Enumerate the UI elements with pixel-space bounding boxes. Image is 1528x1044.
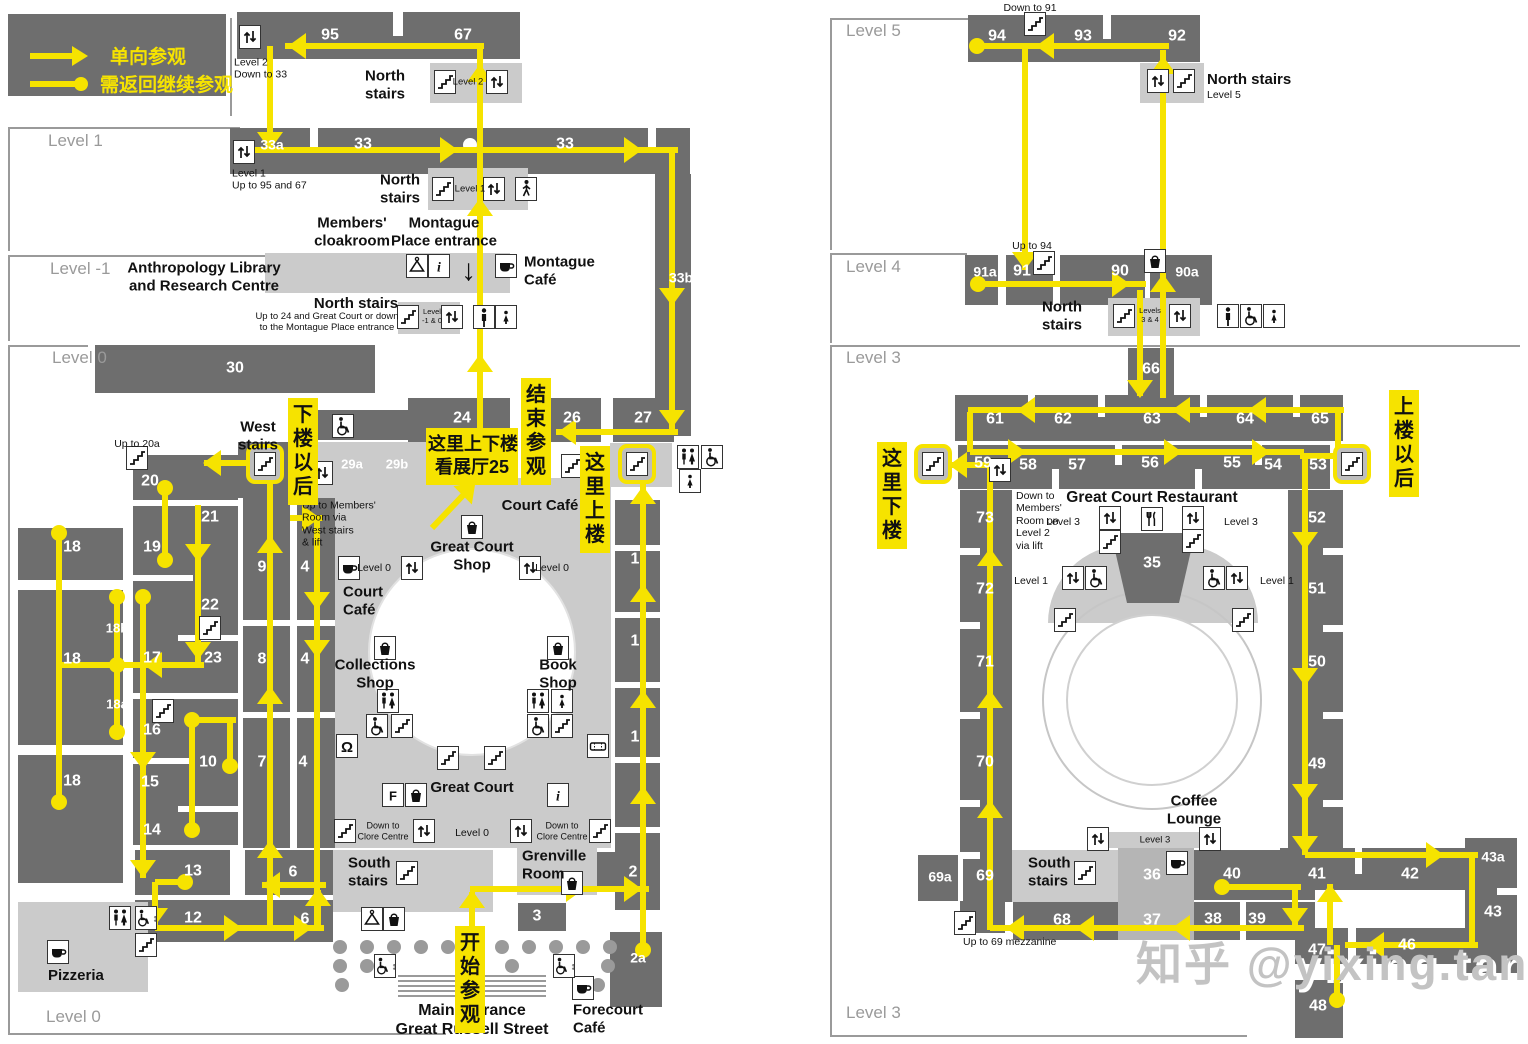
- route-arrow: [262, 872, 280, 898]
- map-text: Level 0: [46, 1007, 101, 1027]
- svg-text:i: i: [437, 261, 441, 276]
- room-number: 19: [143, 539, 161, 558]
- room-number: 39: [1248, 911, 1266, 930]
- stairs-icon: [589, 819, 611, 843]
- lift-icon: [989, 458, 1011, 482]
- route-arrow: [224, 915, 242, 941]
- room-number: 2a: [630, 950, 646, 967]
- room-number: 7: [258, 754, 267, 773]
- legend-one-way-row: 单向参观: [30, 42, 186, 69]
- route-arrow: [257, 535, 283, 553]
- return-line-icon: [30, 81, 76, 87]
- room-number: 30: [226, 360, 244, 379]
- lift-icon: [1099, 506, 1121, 530]
- route-arrow: [1426, 842, 1444, 868]
- map-gap: [133, 500, 238, 506]
- stairs-icon: [1024, 12, 1046, 36]
- map-text: Great Court: [430, 779, 513, 797]
- room-number: 53: [1309, 457, 1327, 476]
- map-gap: [1323, 712, 1343, 719]
- map-text: Level 3: [1140, 834, 1171, 845]
- room-number: 49: [1308, 756, 1326, 775]
- map-gap: [615, 757, 660, 763]
- map-gap: [1323, 548, 1343, 555]
- colonnade-dot: [505, 959, 519, 973]
- lift-icon: [1182, 506, 1204, 530]
- level-frame-line: [830, 1035, 1247, 1037]
- stairs-icon: [437, 746, 459, 770]
- route-arrow: [1292, 784, 1318, 802]
- level-frame-line: [8, 127, 10, 251]
- room-number: 95: [321, 27, 339, 46]
- map-gap: [1195, 469, 1202, 489]
- svg-text:↕: ↕: [571, 962, 575, 973]
- room-number: 33b: [669, 270, 693, 287]
- map-text: Great Court Shop: [430, 538, 513, 573]
- room-number: 14: [143, 822, 161, 841]
- map-gap: [1098, 395, 1105, 417]
- headphones-icon: Ω: [336, 734, 358, 758]
- map-gap: [18, 745, 123, 755]
- route-arrow: [1150, 274, 1176, 292]
- level-frame-line: [8, 345, 88, 347]
- basket-icon: [461, 515, 483, 539]
- level-frame-line: [830, 253, 832, 343]
- map-text: South stairs: [348, 854, 391, 889]
- map-text: Up to 69 mezzanine: [963, 936, 1056, 948]
- map-block: [518, 903, 566, 931]
- room-number: 55: [1223, 455, 1241, 474]
- map-gap: [960, 622, 980, 629]
- route-return-dot: [51, 794, 67, 810]
- map-gap: [1323, 800, 1343, 807]
- route-arrow: [288, 33, 306, 59]
- colonnade-dot: [576, 940, 590, 954]
- room-number: 1: [631, 633, 640, 652]
- level-frame-line: [8, 1033, 446, 1035]
- route-segment: [162, 488, 168, 560]
- wheelchair-icon: [332, 414, 354, 438]
- map-text: Montague Place entrance: [391, 214, 497, 249]
- level-frame-line: [8, 127, 240, 129]
- route-segment: [1305, 852, 1478, 858]
- stairs-icon: [954, 911, 976, 935]
- stairs-icon: [432, 177, 454, 201]
- svg-text:Ω: Ω: [341, 739, 353, 756]
- room-number: 69: [976, 868, 994, 887]
- room-number: 40: [1223, 866, 1241, 885]
- route-arrow: [304, 592, 330, 610]
- route-segment: [1022, 48, 1028, 270]
- room-number: 91a: [973, 264, 996, 281]
- map-gap: [958, 855, 963, 901]
- stairs-icon: [1173, 69, 1195, 93]
- room-number: 27: [634, 410, 652, 429]
- route-arrow: [1076, 915, 1094, 941]
- map-gap: [998, 255, 1006, 305]
- room-number: 4: [301, 559, 310, 578]
- route-arrow: [257, 840, 283, 858]
- room-number: 51: [1308, 581, 1326, 600]
- route-segment: [314, 518, 320, 930]
- map-text: Forecourt Café: [573, 1001, 643, 1036]
- route-arrow: [203, 450, 221, 476]
- entrance-down-icon: ↓: [461, 254, 476, 288]
- legend-return-row: 需返回继续参观: [30, 70, 233, 97]
- room-number: 64: [1236, 411, 1254, 430]
- map-text: Level 5: [1207, 89, 1241, 101]
- map-gap: [393, 12, 403, 36]
- map-text: Pizzeria: [48, 967, 104, 985]
- map-gap: [1115, 445, 1122, 465]
- route-segment: [640, 480, 646, 886]
- colonnade-dot: [549, 940, 563, 954]
- map-gap: [290, 498, 297, 848]
- map-text: Level 1: [48, 131, 103, 151]
- map-gap: [1293, 395, 1300, 417]
- room-number: 94: [988, 28, 1006, 47]
- route-segment: [1160, 50, 1166, 398]
- room-number: 52: [1308, 510, 1326, 529]
- colonnade-dot: [335, 978, 349, 992]
- stairs-icon: [626, 452, 648, 476]
- map-text: West stairs: [238, 418, 278, 453]
- stairs-icon: [135, 933, 157, 957]
- info-icon: i: [428, 254, 450, 278]
- map-text: Up to 24 and Great Court or down to the …: [255, 311, 398, 333]
- map-gap: [615, 682, 660, 688]
- room-number: 58: [1019, 457, 1037, 476]
- wc-icon: [109, 906, 131, 930]
- stairs-icon: [1232, 608, 1254, 632]
- stairs-icon: [199, 616, 221, 640]
- wheelchair-icon: [527, 714, 549, 738]
- map-text: Level 3: [1224, 516, 1258, 528]
- room-number: 18a: [106, 696, 128, 711]
- map-gap: [178, 806, 238, 812]
- route-arrow: [305, 888, 331, 906]
- map-text: South stairs: [1028, 854, 1071, 889]
- route-arrow: [130, 860, 156, 878]
- room-number: 70: [976, 754, 994, 773]
- lift-icon: [1199, 827, 1221, 851]
- colonnade-dot: [522, 940, 536, 954]
- room-number: 68: [1053, 912, 1071, 931]
- stairs-icon: [1113, 304, 1135, 328]
- route-return-dot: [109, 724, 125, 740]
- map-text: Book Shop: [539, 656, 577, 691]
- wheelchair-icon: [701, 445, 723, 469]
- room-number: 67: [454, 27, 472, 46]
- room-number: 8: [258, 651, 267, 670]
- map-text: Up to 94: [1012, 240, 1052, 252]
- map-text: Level 0: [357, 562, 391, 574]
- map-gap: [615, 612, 660, 618]
- level-frame-line: [830, 345, 1520, 347]
- room-number: 48: [1309, 998, 1327, 1017]
- one-way-arrowhead-icon: [72, 46, 88, 66]
- room-number: 33: [354, 136, 372, 155]
- return-dot-icon: [74, 77, 88, 91]
- room-number: 22: [201, 597, 219, 616]
- lift-icon: [239, 25, 261, 49]
- room-number: 10: [199, 754, 217, 773]
- wheelchair-icon: [1085, 566, 1107, 590]
- route-arrow: [1292, 836, 1318, 854]
- map-text: North stairs: [380, 171, 420, 206]
- wclift-icon: ↕: [135, 906, 157, 930]
- room-number: 2: [629, 864, 638, 883]
- stairs-icon: [1054, 608, 1076, 632]
- lift-icon: [413, 819, 435, 843]
- room-number: 42: [1401, 866, 1419, 885]
- map-text: Level 3: [846, 1003, 901, 1023]
- cn-annotation: 这里上楼: [580, 446, 610, 553]
- route-arrow: [1317, 884, 1343, 902]
- room-number: 1: [631, 729, 640, 748]
- route-segment: [189, 722, 195, 830]
- room-number: 9: [258, 559, 267, 578]
- stairs-icon: [1099, 530, 1121, 554]
- wclift-icon: ↕: [553, 954, 575, 978]
- room-number: 16: [143, 722, 161, 741]
- cn-annotation: 下楼以后: [288, 398, 318, 505]
- route-arrow: [1292, 532, 1318, 550]
- room-number: 13: [184, 863, 202, 882]
- map-text: Collections Shop: [335, 656, 416, 691]
- ticket-icon: [587, 734, 609, 758]
- room-number: 29b: [386, 456, 408, 471]
- route-segment: [56, 533, 62, 802]
- museum-floor-plan: 单向参观 需返回继续参观 知乎 @yixing.tan i↓ΩFi↕↕↕Leve…: [0, 0, 1528, 1044]
- room-number: 62: [1054, 411, 1072, 430]
- room-number: 33: [556, 136, 574, 155]
- map-gap: [615, 827, 660, 833]
- level-frame-line: [830, 18, 970, 20]
- map-gap: [1103, 15, 1111, 39]
- room-number: 65: [1311, 411, 1329, 430]
- lift-icon: [486, 70, 508, 94]
- map-text: Level 2 Down to 33: [234, 57, 287, 82]
- watermark: 知乎 @yixing.tan: [1136, 928, 1528, 994]
- level-frame-line: [230, 18, 232, 116]
- room-number: 38: [1204, 911, 1222, 930]
- room-number: 18b: [106, 620, 128, 635]
- colonnade-dot: [360, 940, 374, 954]
- F-icon: F: [382, 783, 404, 807]
- room-number: 90a: [1175, 264, 1198, 281]
- route-arrow: [185, 544, 211, 562]
- room-number: 23: [204, 650, 222, 669]
- map-gap: [1200, 395, 1207, 417]
- map-text: Level 0: [535, 562, 569, 574]
- level-frame-line: [830, 345, 832, 1035]
- route-arrow: [659, 410, 685, 428]
- stairs-icon: [922, 452, 944, 476]
- route-arrow: [630, 690, 656, 708]
- map-text: North stairs: [1042, 298, 1082, 333]
- stairs-icon: [551, 714, 573, 738]
- map-block: [610, 932, 662, 1007]
- wc-icon: [677, 445, 699, 469]
- map-text: Level 3: [846, 348, 901, 368]
- info-icon: i: [547, 783, 569, 807]
- room-number: 17: [143, 650, 161, 669]
- route-arrow: [1282, 908, 1308, 926]
- wheelchair-icon: [1203, 566, 1225, 590]
- basket-icon: [383, 907, 405, 931]
- map-text: Level 1: [1260, 575, 1294, 587]
- stairs-icon: [334, 819, 356, 843]
- colonnade-dot: [360, 959, 374, 973]
- route-arrow: [440, 137, 458, 163]
- level-frame-line: [830, 18, 832, 250]
- route-return-dot: [109, 589, 125, 605]
- map-gap: [960, 712, 980, 719]
- room-number: 24: [453, 410, 471, 429]
- room-number: 72: [976, 581, 994, 600]
- room-number: 36: [1143, 867, 1161, 886]
- route-segment: [967, 412, 973, 452]
- map-text: Level 5: [846, 21, 901, 41]
- map-text: Level 2: [453, 76, 484, 87]
- reading-room-circle: [1066, 614, 1238, 786]
- room-number: 15: [141, 774, 159, 793]
- map-text: Level 1: [455, 183, 486, 194]
- room-number: 35: [1143, 555, 1161, 574]
- map-text: Down to Clore Centre: [536, 820, 587, 841]
- cn-annotation: 这里下楼: [877, 442, 907, 549]
- room-number: 1: [631, 551, 640, 570]
- baby-icon: [495, 305, 517, 329]
- route-return-dot: [969, 38, 985, 54]
- level-frame-line: [8, 255, 280, 257]
- map-text: Down to 91: [1003, 2, 1056, 14]
- svg-text:↕: ↕: [392, 962, 396, 973]
- hanger-icon: [361, 907, 383, 931]
- stairs-icon: [396, 861, 418, 885]
- route-arrow: [977, 548, 1003, 566]
- lift-icon: [483, 177, 505, 201]
- room-number: 63: [1143, 411, 1161, 430]
- wheelchair-icon: [1240, 304, 1262, 328]
- route-arrow: [659, 288, 685, 306]
- level-frame-line: [8, 255, 10, 341]
- map-text: Levels 3 & 4: [1139, 307, 1161, 325]
- route-return-dot: [157, 480, 173, 496]
- stairs-icon: [484, 746, 506, 770]
- level-frame-line: [8, 345, 10, 1035]
- cn-annotation: 上楼以后: [1389, 390, 1419, 497]
- map-text: Great Court Restaurant: [1066, 489, 1237, 507]
- room-number: 93: [1074, 28, 1092, 47]
- route-segment: [1222, 884, 1301, 890]
- stairs-icon: [1341, 452, 1363, 476]
- map-text: North stairs: [1207, 71, 1291, 89]
- map-gap: [1323, 625, 1343, 632]
- colonnade-dot: [603, 940, 617, 954]
- route-segment: [470, 886, 649, 892]
- map-text: Court Café: [343, 583, 383, 618]
- map-gap: [608, 922, 662, 930]
- room-number: 54: [1264, 457, 1282, 476]
- baby-icon: [551, 689, 573, 713]
- room-number: 61: [986, 411, 1004, 430]
- room-number: 33a: [260, 137, 283, 154]
- map-text: Level 1: [1014, 575, 1048, 587]
- wclift-icon: ↕: [374, 954, 396, 978]
- lift-icon: [510, 819, 532, 843]
- hanger-icon: [406, 254, 428, 278]
- room-number: 43a: [1481, 849, 1504, 866]
- lift-icon: [1087, 827, 1109, 851]
- forkknife-icon: [1141, 507, 1163, 531]
- route-arrow: [1164, 439, 1182, 465]
- baby-icon: [679, 469, 701, 493]
- stairs-icon: [152, 699, 174, 723]
- map-text: North stairs: [365, 67, 405, 102]
- map-text: Montague Café: [524, 253, 595, 288]
- basket-icon: [1144, 249, 1166, 273]
- cn-annotation: 这里上下楼 看展厅25: [426, 428, 518, 485]
- map-gap: [133, 693, 238, 699]
- route-legend: 单向参观 需返回继续参观: [8, 14, 226, 96]
- stairs-icon: [1033, 251, 1055, 275]
- cafe-icon: [495, 254, 517, 278]
- map-text: Down to Clore Centre: [357, 820, 408, 841]
- map-text: Members' cloakroom: [314, 214, 390, 249]
- map-text: Level 0: [455, 827, 489, 839]
- route-return-dot: [184, 822, 200, 838]
- stairs-icon: [1182, 529, 1204, 553]
- map-text: Up to 20a: [114, 438, 160, 450]
- room-number: 4: [301, 651, 310, 670]
- cafe-icon: [572, 976, 594, 1000]
- map-gap: [133, 575, 193, 581]
- walk-icon: [515, 177, 537, 201]
- stairs-icon: [391, 714, 413, 738]
- one-way-arrow-icon: [30, 53, 72, 59]
- room-number: 6: [301, 911, 310, 930]
- room-number: 73: [976, 510, 994, 529]
- route-arrow: [977, 800, 1003, 818]
- man-icon: [1217, 304, 1239, 328]
- room-number: 69a: [928, 869, 951, 886]
- room-number: 90: [1111, 263, 1129, 282]
- svg-text:F: F: [389, 789, 397, 804]
- lift-icon: [1226, 566, 1248, 590]
- colonnade-dot: [414, 940, 428, 954]
- cafe-icon: [1166, 851, 1188, 875]
- map-text: Level -1: [50, 259, 110, 279]
- map-text: Level 1 Up to 95 and 67: [232, 168, 307, 193]
- route-arrow: [1036, 33, 1054, 59]
- route-arrow: [630, 786, 656, 804]
- room-number: 92: [1168, 28, 1186, 47]
- man-icon: [473, 305, 495, 329]
- stairs-icon: [397, 305, 419, 329]
- route-arrow: [1017, 397, 1035, 423]
- route-arrow: [1127, 380, 1153, 398]
- route-segment: [252, 147, 678, 153]
- room-number: 12: [184, 910, 202, 929]
- map-text: Up to Members' Room via West stairs & li…: [302, 499, 376, 549]
- route-segment: [114, 597, 120, 732]
- route-return-dot: [1329, 992, 1345, 1008]
- stairs-icon: [254, 452, 276, 476]
- room-number: 20: [141, 473, 159, 492]
- colonnade-dot: [495, 940, 509, 954]
